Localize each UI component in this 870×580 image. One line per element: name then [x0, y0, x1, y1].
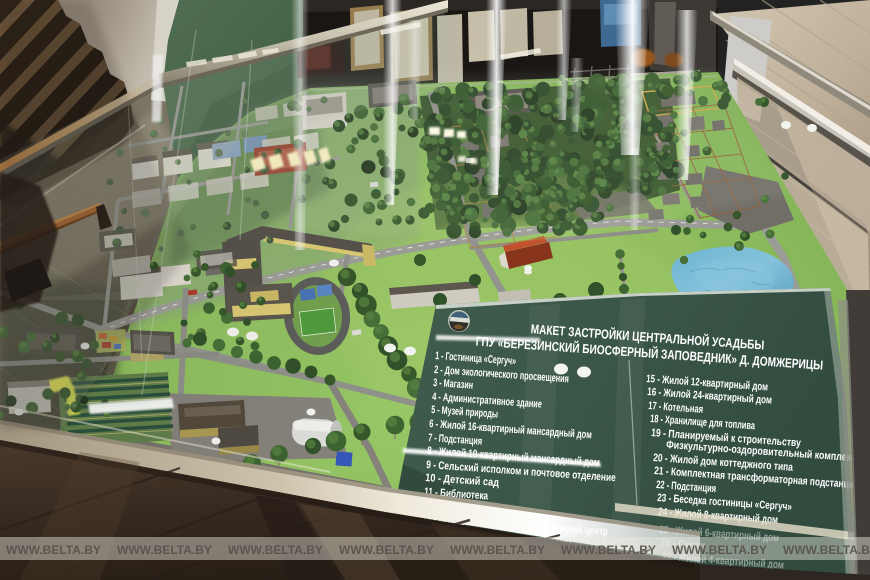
svg-text:WWW.BELTA.BY: WWW.BELTA.BY [228, 543, 323, 557]
svg-text:WWW.BELTA.BY: WWW.BELTA.BY [783, 543, 870, 557]
svg-text:WWW.BELTA.BY: WWW.BELTA.BY [672, 543, 767, 557]
svg-text:WWW.BELTA.BY: WWW.BELTA.BY [450, 543, 545, 557]
svg-text:WWW.BELTA.BY: WWW.BELTA.BY [339, 543, 434, 557]
svg-text:WWW.BELTA.BY: WWW.BELTA.BY [561, 543, 656, 557]
svg-text:WWW.BELTA.BY: WWW.BELTA.BY [6, 543, 101, 557]
svg-text:WWW.BELTA.BY: WWW.BELTA.BY [117, 543, 212, 557]
